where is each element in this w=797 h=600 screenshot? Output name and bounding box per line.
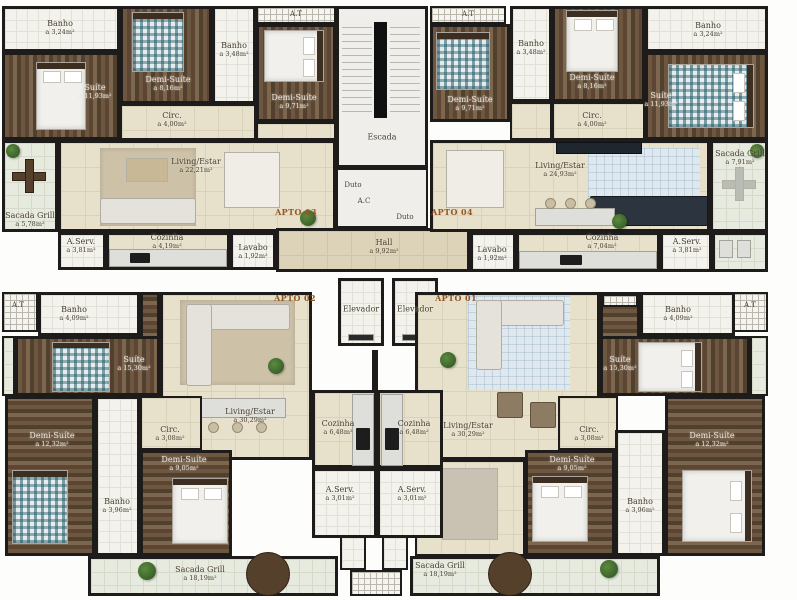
label-apto02-demi1: Demi-Suítea 12,32m² bbox=[29, 432, 74, 448]
cross-table bbox=[735, 167, 744, 201]
double-bed bbox=[264, 30, 324, 82]
bar-stool bbox=[565, 198, 576, 209]
service-wc-left bbox=[340, 536, 366, 570]
duct-zone bbox=[336, 168, 428, 228]
side-balcony bbox=[750, 336, 768, 396]
label-escada: Escada bbox=[367, 134, 396, 143]
label-apto01-at: A.T bbox=[744, 302, 756, 310]
plant-icon bbox=[6, 144, 20, 158]
coffee-table bbox=[126, 158, 168, 182]
label-ac: A.C bbox=[358, 198, 371, 206]
label-elevador-2: Elevador bbox=[397, 306, 433, 315]
label-apto04-demi2: Demi-Suítea 8,16m² bbox=[569, 74, 614, 90]
label-apto-03: APTO 03 bbox=[275, 207, 317, 217]
label-apto03-banho2: Banhoa 3,48m² bbox=[219, 42, 248, 58]
label-apto02-suite: Suítea 15,30m² bbox=[117, 356, 150, 372]
shaft-hatch bbox=[350, 570, 402, 596]
label-apto04-cozinha: Cozinhaa 7,04m² bbox=[586, 234, 619, 250]
room-apto01-banho2 bbox=[615, 430, 665, 556]
label-apto02-banho1: Banhoa 4,09m² bbox=[59, 306, 88, 322]
label-apto04-sacada: Sacada Grilla 7,91m² bbox=[715, 150, 765, 166]
kitchen-counter bbox=[519, 251, 657, 269]
sofa bbox=[476, 300, 502, 370]
plant-icon bbox=[138, 562, 156, 580]
stair-treads bbox=[390, 22, 420, 118]
label-duto-2: Duto bbox=[396, 214, 413, 222]
double-bed bbox=[566, 10, 618, 72]
stair-treads bbox=[342, 22, 372, 118]
label-apto02-sacada: Sacada Grilla 18,19m² bbox=[175, 566, 225, 582]
label-apto04-aserv: A.Serv.a 3,81m² bbox=[672, 238, 701, 254]
label-apto01-circ: Circ.a 3,08m² bbox=[574, 426, 603, 442]
double-bed bbox=[638, 342, 702, 392]
service-wc-right bbox=[382, 536, 408, 570]
label-apto01-sacada: Sacada Grilla 18,19m² bbox=[415, 562, 465, 578]
stair-rail bbox=[374, 22, 387, 118]
double-bed bbox=[172, 478, 228, 544]
label-apto03-demi2: Demi-Suítea 9,71m² bbox=[271, 94, 316, 110]
label-apto03-sacada: Sacada Grilla 5,78m² bbox=[5, 212, 55, 228]
washer bbox=[737, 240, 751, 258]
label-apto02-at: A.T bbox=[12, 302, 24, 310]
double-bed bbox=[668, 64, 754, 128]
label-apto02-cozinha: Cozinhaa 6,48m² bbox=[322, 420, 355, 436]
plant-icon bbox=[268, 358, 284, 374]
room-apto02-aserv bbox=[312, 468, 377, 538]
label-apto04-living: Living/Estara 24,93m² bbox=[535, 162, 585, 178]
label-elevador-1: Elevador bbox=[343, 306, 379, 315]
floor-plan: Banhoa 3,24m² Suítea 11,93m² Demi-Suítea… bbox=[0, 0, 797, 600]
double-bed bbox=[436, 32, 490, 90]
stove-burners bbox=[130, 253, 150, 263]
label-apto02-circ: Circ.a 3,08m² bbox=[155, 426, 184, 442]
label-apto03-living: Living/Estara 22,21m² bbox=[171, 158, 221, 174]
label-apto01-demi1: Demi-Suítea 9,05m² bbox=[549, 456, 594, 472]
label-apto01-suite: Suítea 15,30m² bbox=[603, 356, 636, 372]
label-apto-04: APTO 04 bbox=[431, 207, 473, 217]
room-apto02-banho1 bbox=[38, 292, 140, 336]
label-apto03-demi1: Demi-Suítea 8,16m² bbox=[145, 76, 190, 92]
label-apto01-cozinha: Cozinhaa 6,48m² bbox=[398, 420, 431, 436]
dining-table bbox=[224, 152, 280, 208]
cross-table bbox=[25, 159, 34, 193]
label-apto03-suite: Suítea 11,93m² bbox=[78, 84, 111, 100]
label-apto03-circ: Circ.a 4,00m² bbox=[157, 112, 186, 128]
stove-burners bbox=[560, 255, 582, 265]
label-apto03-lavabo: Lavaboa 1,92m² bbox=[238, 244, 267, 260]
wardrobe-hatch bbox=[602, 294, 638, 307]
label-apto04-suite: Suítea 11,93m² bbox=[644, 92, 677, 108]
double-bed bbox=[682, 470, 752, 542]
label-apto04-lavabo: Lavaboa 1,92m² bbox=[477, 246, 506, 262]
label-apto03-banho1: Banhoa 3,24m² bbox=[45, 20, 74, 36]
kitchen-island bbox=[535, 208, 615, 226]
sofa bbox=[186, 304, 212, 386]
label-apto-01: APTO 01 bbox=[435, 293, 477, 303]
label-hall: Halla 9,92m² bbox=[369, 239, 398, 255]
corridor bbox=[510, 102, 552, 140]
room-apto01-aserv bbox=[377, 468, 443, 538]
room-apto03-circ bbox=[120, 104, 256, 140]
room-apto01-at bbox=[732, 292, 768, 332]
plant-icon bbox=[440, 352, 456, 368]
elevator-door bbox=[348, 334, 374, 341]
label-apto01-banho1: Banhoa 4,09m² bbox=[663, 306, 692, 322]
stove-burners bbox=[356, 428, 370, 450]
dining-table bbox=[446, 150, 504, 208]
plant-icon bbox=[612, 214, 627, 229]
room-apto02-banho2 bbox=[95, 396, 140, 556]
label-apto02-demi2: Demi-Suítea 9,05m² bbox=[161, 456, 206, 472]
double-bed bbox=[532, 476, 588, 542]
room-apto02-at bbox=[2, 292, 38, 332]
kitchen-counter bbox=[109, 249, 227, 267]
label-apto04-at: A.T bbox=[462, 11, 474, 19]
label-apto02-aserv: A.Serv.a 3,01m² bbox=[325, 486, 354, 502]
plant-icon bbox=[600, 560, 618, 578]
armchair bbox=[497, 392, 523, 418]
round-table bbox=[246, 552, 290, 596]
sofa bbox=[100, 198, 196, 224]
bar-stool bbox=[585, 198, 596, 209]
label-apto01-aserv: A.Serv.a 3,01m² bbox=[397, 486, 426, 502]
label-apto04-banho1: Banhoa 3,48m² bbox=[516, 40, 545, 56]
washer bbox=[719, 240, 733, 258]
armchair bbox=[530, 402, 556, 428]
tv-panel bbox=[556, 142, 642, 154]
label-apto03-cozinha: Cozinhaa 4,19m² bbox=[151, 234, 184, 250]
side-balcony bbox=[2, 336, 15, 396]
label-apto04-demi1: Demi-Suítea 9,71m² bbox=[447, 96, 492, 112]
double-bed bbox=[132, 12, 184, 72]
label-apto-02: APTO 02 bbox=[274, 293, 316, 303]
bar-stool bbox=[545, 198, 556, 209]
label-apto04-banho2: Banhoa 3,24m² bbox=[693, 22, 722, 38]
label-apto03-at: A.T bbox=[290, 11, 302, 19]
label-duto-1: Duto bbox=[344, 182, 361, 190]
label-apto02-banho2: Banhoa 3,96m² bbox=[102, 498, 131, 514]
label-apto04-circ: Circ.a 4,00m² bbox=[577, 112, 606, 128]
dining-table bbox=[442, 468, 498, 540]
label-apto02-living: Living/Estara 30,29m² bbox=[225, 408, 275, 424]
double-bed bbox=[12, 470, 68, 544]
label-apto03-aserv: A.Serv.a 3,81m² bbox=[66, 238, 95, 254]
label-apto01-living: Living/Estara 30,29m² bbox=[443, 422, 493, 438]
label-apto01-demi2: Demi-Suítea 12,32m² bbox=[689, 432, 734, 448]
round-table bbox=[488, 552, 532, 596]
bar-stool bbox=[208, 422, 219, 433]
double-bed bbox=[52, 342, 110, 392]
label-apto01-banho2: Banhoa 3,96m² bbox=[625, 498, 654, 514]
corridor bbox=[256, 122, 336, 140]
